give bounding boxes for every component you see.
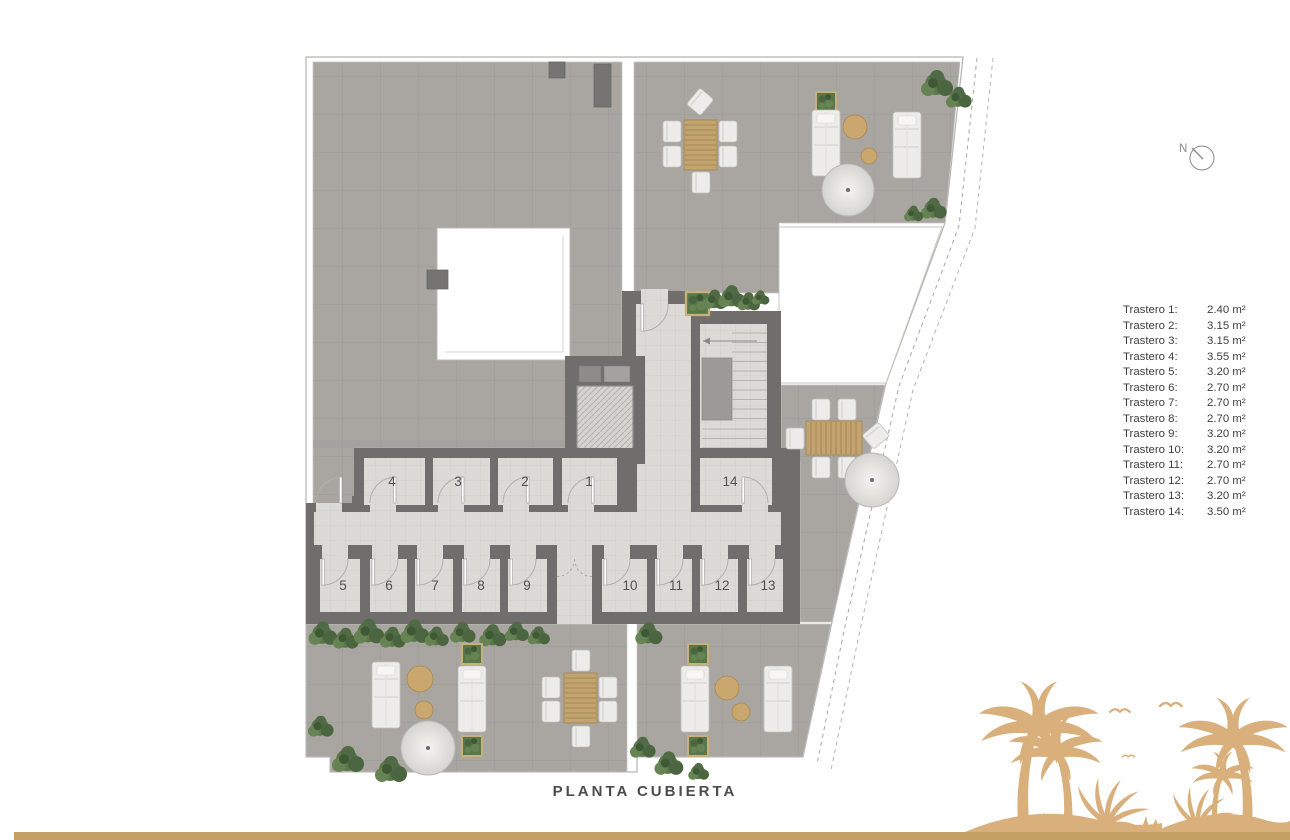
legend-value: 2.70 m² [1207,396,1255,412]
side-table [415,701,433,719]
open-void-right [779,227,942,383]
legend-row: Trastero 14:3.50 m² [1123,505,1255,521]
legend-label: Trastero 6: [1123,381,1207,397]
legend-label: Trastero 1: [1123,303,1207,319]
roof-plan-page: 1 2 3 4 5 6 7 8 9 10 11 12 13 14 [0,0,1290,840]
legend-label: Trastero 7: [1123,396,1207,412]
legend-label: Trastero 13: [1123,489,1207,505]
legend-row: Trastero 13:3.20 m² [1123,489,1255,505]
legend-row: Trastero 11:2.70 m² [1123,458,1255,474]
room-number-2: 2 [521,474,529,489]
legend-label: Trastero 9: [1123,427,1207,443]
island-mound [1150,814,1290,834]
dining-table [806,421,862,455]
room-number-3: 3 [454,474,462,489]
legend-row: Trastero 3:3.15 m² [1123,334,1255,350]
legend-label: Trastero 3: [1123,334,1207,350]
palm-tree [1179,698,1288,830]
legend-label: Trastero 2: [1123,319,1207,335]
legend-label: Trastero 14: [1123,505,1207,521]
legend-label: Trastero 4: [1123,350,1207,366]
legend-row: Trastero 4:3.55 m² [1123,350,1255,366]
legend-label: Trastero 10: [1123,443,1207,459]
bird-icon [1110,709,1130,712]
legend-row: Trastero 10:3.20 m² [1123,443,1255,459]
dining-table [684,120,717,170]
room-number-7: 7 [431,578,439,593]
legend-value: 3.20 m² [1207,365,1255,381]
legend-row: Trastero 1:2.40 m² [1123,303,1255,319]
room-number-9: 9 [523,578,531,593]
legend-value: 3.15 m² [1207,319,1255,335]
legend-row: Trastero 5:3.20 m² [1123,365,1255,381]
side-table [407,666,433,692]
room-number-6: 6 [385,578,393,593]
legend-label: Trastero 11: [1123,458,1207,474]
legend-label: Trastero 5: [1123,365,1207,381]
legend-row: Trastero 9:3.20 m² [1123,427,1255,443]
compass-icon: N [1179,143,1214,170]
legend-row: Trastero 7:2.70 m² [1123,396,1255,412]
plan-title: PLANTA CUBIERTA [345,783,945,800]
bird-icon [1160,703,1182,706]
legend-label: Trastero 8: [1123,412,1207,428]
room-number-12: 12 [714,578,729,593]
room-number-4: 4 [388,474,396,489]
storage-legend: Trastero 1:2.40 m² Trastero 2:3.15 m² Tr… [1123,303,1255,520]
legend-row: Trastero 12:2.70 m² [1123,474,1255,490]
palm-beach-silhouette [965,681,1290,840]
compass-north-label: N [1179,143,1187,155]
corridor-floor [314,512,781,545]
room-number-10: 10 [622,578,637,593]
legend-value: 3.20 m² [1207,489,1255,505]
roof-block [549,62,565,78]
bird-icon [1122,755,1135,757]
room-number-11: 11 [669,578,683,593]
skylight-void [437,228,570,360]
side-table [843,115,867,139]
legend-row: Trastero 2:3.15 m² [1123,319,1255,335]
footer-gold-bar [14,832,1290,840]
legend-value: 2.70 m² [1207,474,1255,490]
dining-table [564,673,597,723]
room-number-13: 13 [760,578,775,593]
room-number-14: 14 [722,474,738,489]
stairwell-void [702,358,732,420]
legend-value: 2.70 m² [1207,458,1255,474]
legend-value: 2.70 m² [1207,381,1255,397]
legend-value: 2.70 m² [1207,412,1255,428]
legend-value: 3.20 m² [1207,443,1255,459]
elevator-cabin [577,386,633,450]
legend-label: Trastero 12: [1123,474,1207,490]
room-number-8: 8 [477,578,485,593]
storage-block: 1 2 3 4 5 6 7 8 9 10 11 12 13 14 [306,448,800,624]
side-table [732,703,750,721]
legend-value: 3.20 m² [1207,427,1255,443]
legend-value: 2.40 m² [1207,303,1255,319]
stairs [700,324,767,448]
side-table [861,148,877,164]
roof-block [594,64,611,107]
side-table [715,676,739,700]
legend-value: 3.55 m² [1207,350,1255,366]
room-number-1: 1 [585,474,593,489]
legend-value: 3.50 m² [1207,505,1255,521]
passage-floor [557,545,592,624]
elevator [565,356,645,464]
legend-row: Trastero 8:2.70 m² [1123,412,1255,428]
floor-plan-drawing: 1 2 3 4 5 6 7 8 9 10 11 12 13 14 [0,0,1290,840]
roof-block [427,270,448,289]
room-number-5: 5 [339,578,347,593]
legend-row: Trastero 6:2.70 m² [1123,381,1255,397]
legend-value: 3.15 m² [1207,334,1255,350]
